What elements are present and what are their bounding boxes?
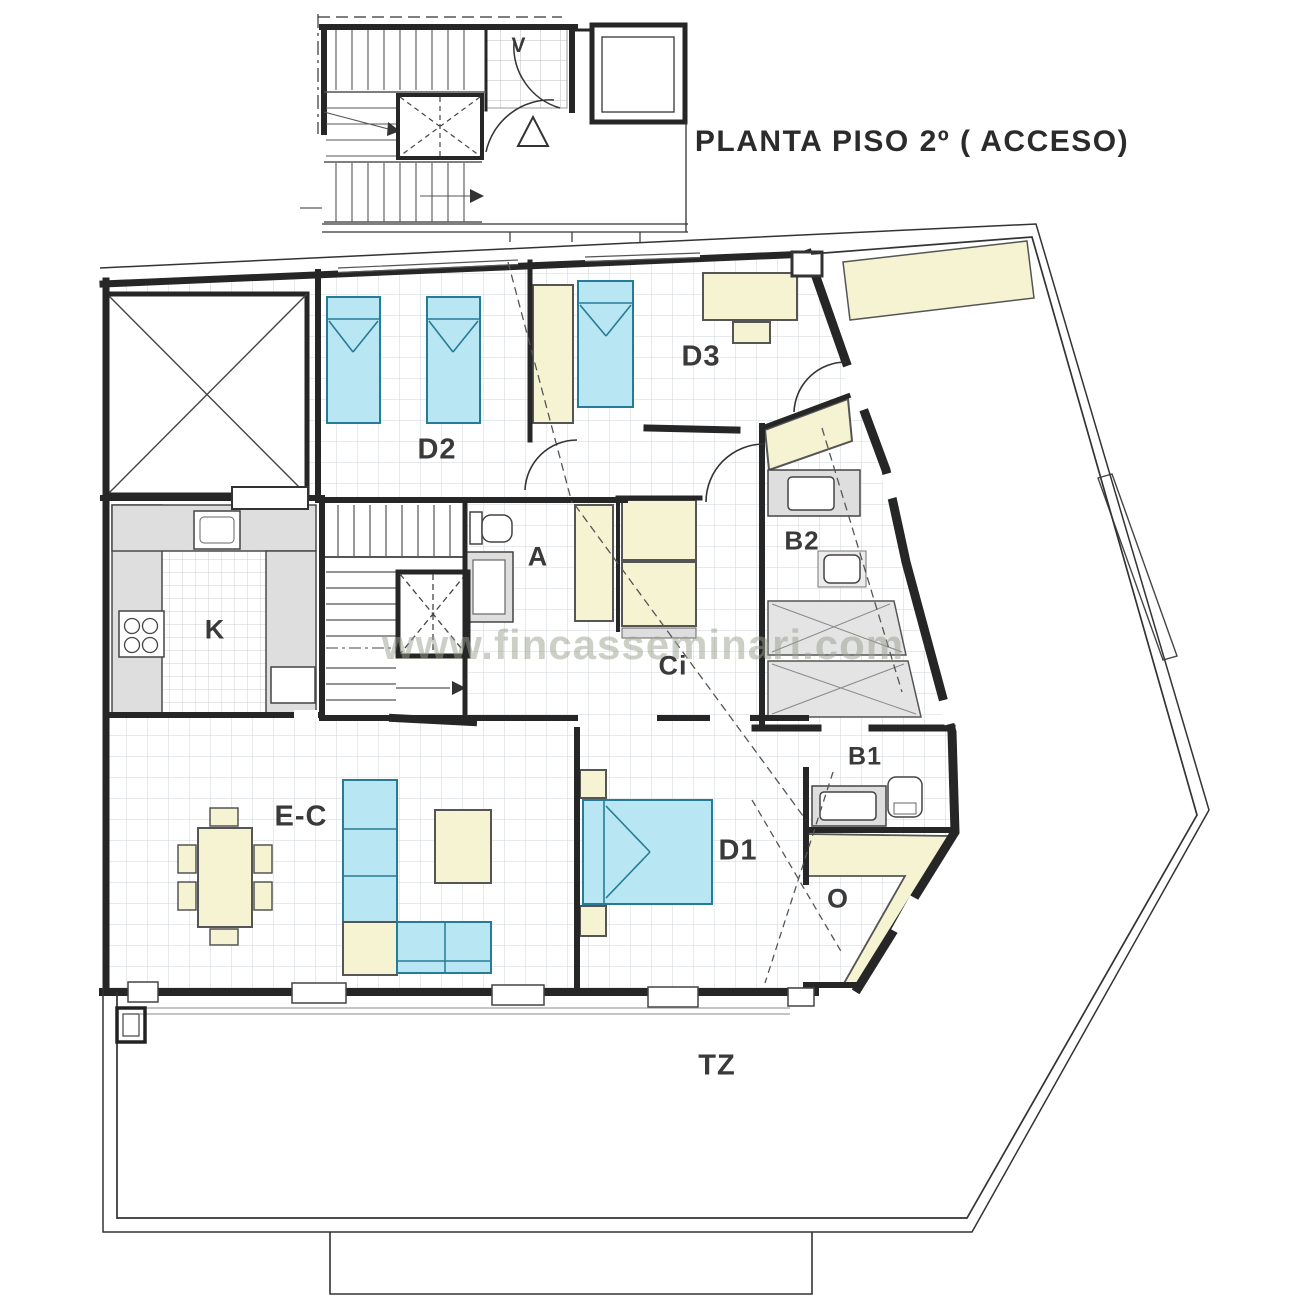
- shower-icon: [768, 661, 921, 717]
- patio-lightwell: [107, 294, 307, 495]
- elevator-icon: [398, 95, 482, 158]
- room-label-ci: Ci: [659, 651, 688, 682]
- direction-arrow-icon: [470, 189, 484, 203]
- toilet-icon: [818, 551, 866, 587]
- inset-plan: [300, 14, 688, 242]
- room-label-v: V: [511, 34, 526, 58]
- shower-icon: [465, 552, 513, 622]
- double-bed: [583, 800, 712, 904]
- room-label-a: A: [528, 542, 549, 573]
- hob-icon: [119, 611, 164, 657]
- triangle-symbol-icon: [518, 117, 548, 146]
- room-label-b2: B2: [784, 526, 819, 557]
- single-bed: [327, 297, 380, 423]
- wall-pier: [792, 252, 822, 276]
- room-label-b1: B1: [848, 743, 882, 772]
- shaft-box: [592, 25, 685, 122]
- single-bed: [427, 297, 480, 423]
- appliance-icon: [271, 667, 315, 703]
- single-bed: [578, 281, 633, 407]
- wall-pier: [232, 487, 308, 509]
- watermark: www.fincasseminari.com: [382, 621, 904, 669]
- washbasin-icon: [812, 786, 886, 826]
- room-label-d2: D2: [417, 434, 456, 467]
- column: [117, 1008, 145, 1042]
- room-label-ec: E-C: [275, 801, 328, 834]
- toilet-icon: [470, 512, 512, 544]
- coffee-table: [435, 810, 491, 883]
- room-label-d3: D3: [681, 341, 720, 374]
- page-title: PLANTA PISO 2º ( ACCESO): [695, 125, 1129, 159]
- room-label-k: K: [205, 615, 226, 646]
- room-label-tz: TZ: [698, 1050, 735, 1083]
- room-label-o: O: [827, 884, 849, 915]
- floorplan-page: PLANTA PISO 2º ( ACCESO) www.fincassemin…: [0, 0, 1300, 1312]
- toilet-icon: [888, 777, 922, 817]
- planter: [843, 241, 1034, 320]
- room-label-d1: D1: [718, 835, 757, 868]
